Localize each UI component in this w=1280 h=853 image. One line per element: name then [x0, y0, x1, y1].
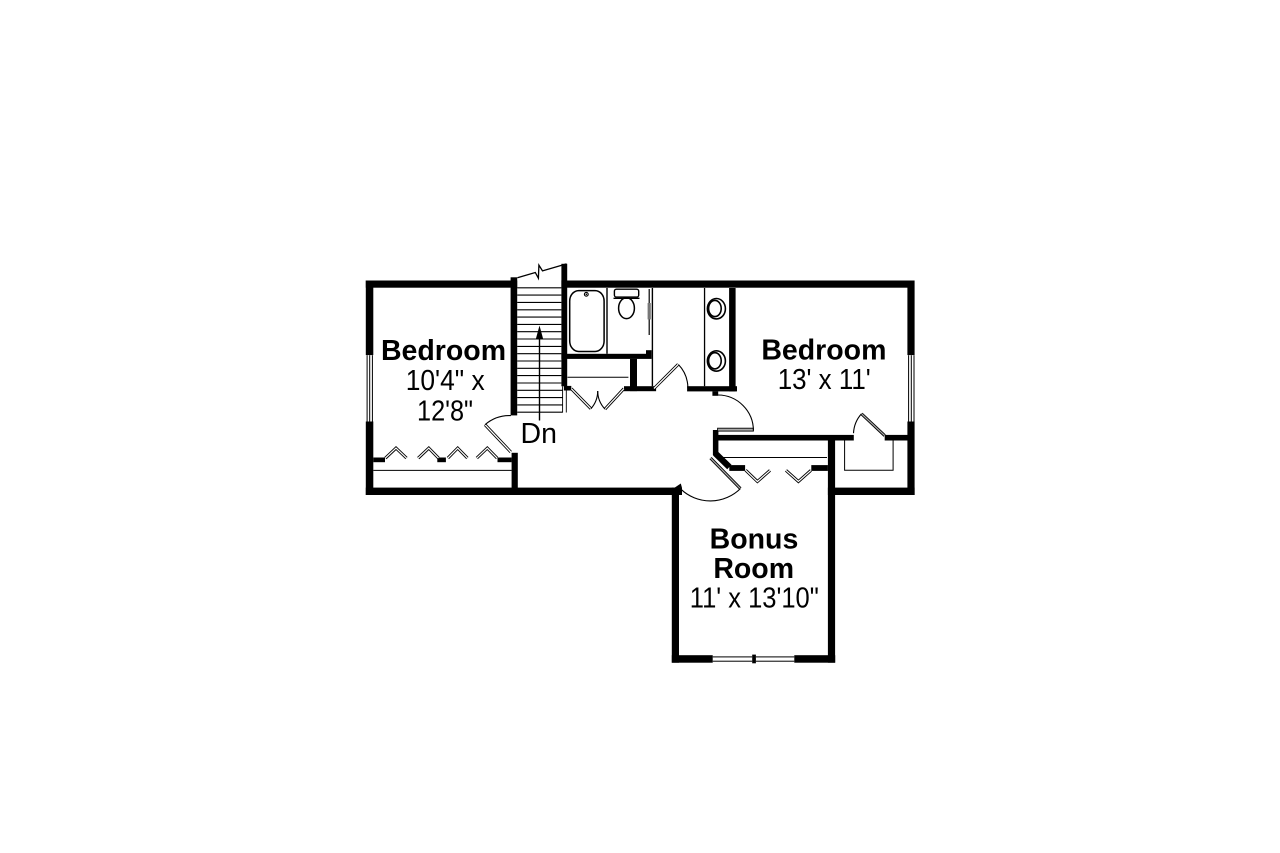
svg-text:12'8": 12'8" [417, 395, 473, 427]
svg-text:Room: Room [713, 553, 794, 585]
svg-text:Bonus: Bonus [710, 523, 799, 555]
svg-text:Dn: Dn [521, 418, 557, 450]
svg-text:Bedroom: Bedroom [381, 335, 506, 367]
svg-text:10'4" x: 10'4" x [406, 365, 485, 397]
svg-text:Bedroom: Bedroom [761, 334, 886, 366]
svg-text:11' x 13'10": 11' x 13'10" [690, 582, 819, 614]
svg-text:13' x 11': 13' x 11' [778, 364, 871, 396]
